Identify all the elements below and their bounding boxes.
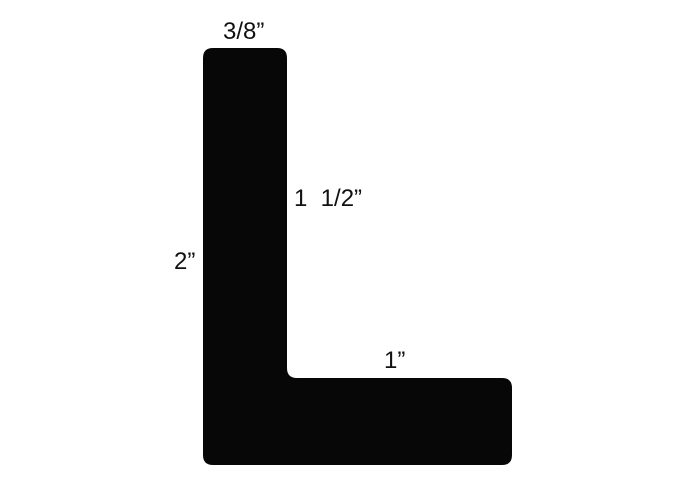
dimension-label-arm-length: 1” — [384, 348, 405, 374]
dimension-label-top-width: 3/8” — [223, 19, 264, 45]
dimension-label-left-height: 2” — [174, 249, 195, 275]
dimension-label-inner-height: 1 1/2” — [294, 186, 362, 212]
diagram-canvas: 3/8” 1 1/2” 2” 1” — [0, 0, 700, 500]
l-shape-path — [203, 48, 512, 465]
l-profile-shape — [0, 0, 700, 500]
